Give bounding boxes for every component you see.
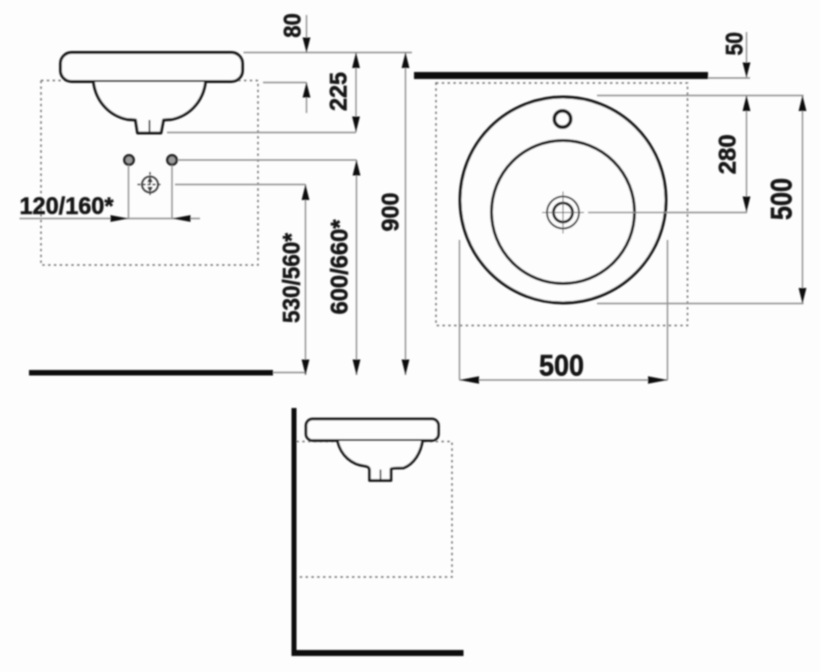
svg-text:50: 50: [721, 32, 748, 56]
svg-text:900: 900: [377, 193, 404, 232]
svg-text:80: 80: [279, 13, 306, 38]
svg-text:530/560*: 530/560*: [278, 232, 305, 323]
svg-text:225: 225: [326, 72, 353, 111]
svg-text:280: 280: [714, 134, 741, 174]
svg-text:120/160*: 120/160*: [20, 193, 115, 220]
svg-text:600/660*: 600/660*: [326, 219, 353, 315]
svg-text:500: 500: [539, 349, 584, 382]
svg-text:500: 500: [765, 178, 798, 220]
